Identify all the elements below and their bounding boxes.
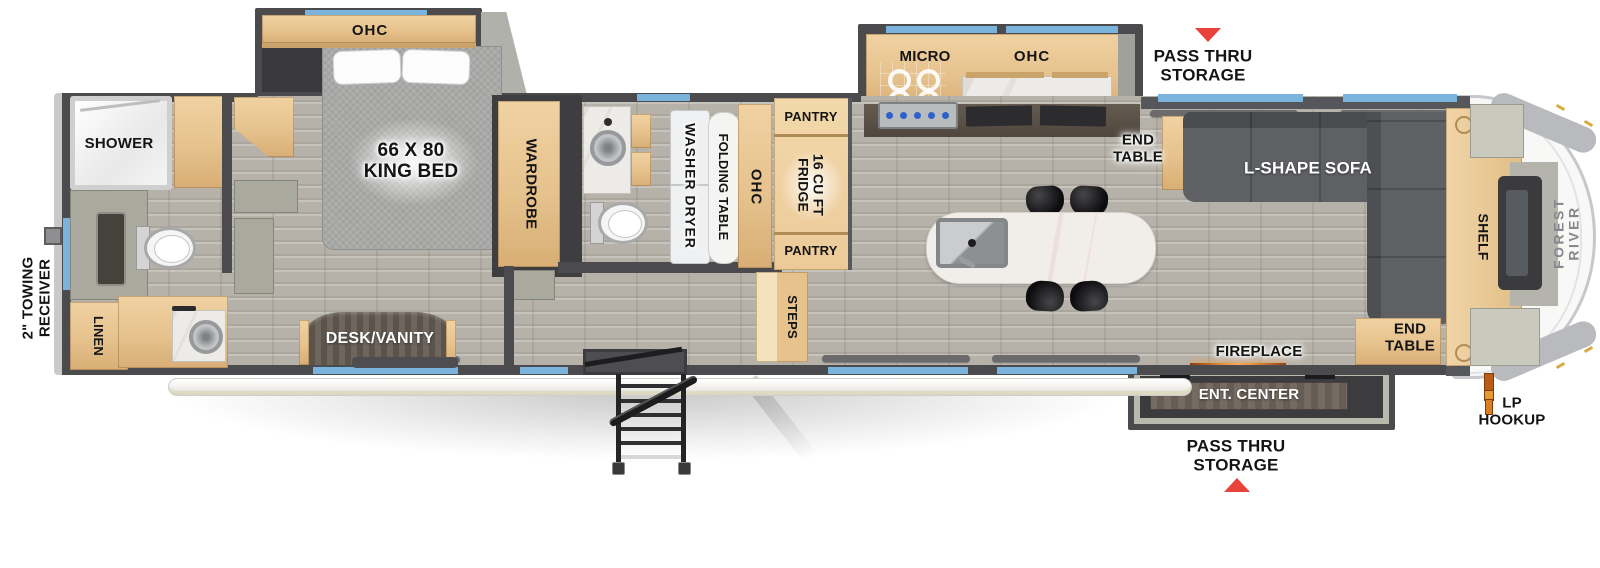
- kitchen-slide-cabinet-rail: [1052, 72, 1108, 78]
- window-top-mid: [637, 94, 690, 101]
- hitch-receiver: [44, 227, 62, 245]
- range-burner: [942, 112, 949, 119]
- towing-receiver-label: 2" TOWING RECEIVER: [21, 257, 54, 340]
- rear-sink-basin: [189, 320, 223, 354]
- pantry-bottom-label: PANTRY: [784, 244, 837, 258]
- l-shape-sofa-label: L-SHAPE SOFA: [1244, 160, 1372, 179]
- shelf-cabinet-bottom: [1470, 308, 1540, 366]
- island-chair: [1025, 280, 1065, 312]
- bedroom-closet-lower: [234, 218, 274, 294]
- floorplan-canvas: SHOWER LINEN 2" TOWING RECEIVER OHC 66 X…: [0, 0, 1600, 568]
- bath2-drawer-top: [631, 114, 651, 148]
- window-top-living-1: [1158, 94, 1303, 102]
- tie-down-hook: [1556, 362, 1565, 369]
- counter-black-left: [966, 105, 1032, 126]
- pillow-right: [401, 49, 470, 85]
- range-burner: [914, 112, 921, 119]
- forest-river-brand-label: FOREST RIVER: [1552, 197, 1583, 269]
- hall-divider-wall: [504, 266, 514, 375]
- pantry-fridge-divider: [774, 134, 850, 137]
- hall-ohc-label: OHC: [747, 169, 764, 205]
- wardrobe-label: WARDROBE: [522, 139, 539, 230]
- range-burner: [900, 112, 907, 119]
- ladder-rung: [621, 441, 681, 445]
- folding-table-label: FOLDING TABLE: [716, 133, 730, 240]
- tv-screen: [1506, 190, 1528, 276]
- rear-sink-faucet: [172, 306, 196, 311]
- fridge-label: 16 CU FT FRIDGE: [795, 154, 826, 216]
- window-rear-left: [63, 218, 70, 290]
- ladder-rung: [621, 427, 681, 431]
- king-bed-label: 66 X 80 KING BED: [364, 141, 459, 183]
- bath2-faucet: [604, 118, 612, 126]
- wall-bottom: [62, 365, 1460, 375]
- tie-down-hook: [1556, 104, 1565, 111]
- kitchen-slide-window-left: [886, 26, 997, 33]
- fridge-edge: [848, 98, 852, 270]
- island-sink-drain: [968, 239, 976, 247]
- pantry-fridge-divider: [774, 232, 850, 235]
- pass-thru-bottom-label: PASS THRU STORAGE: [1187, 437, 1286, 474]
- toilet-rear-seat: [154, 235, 190, 263]
- rear-vanity-mirror: [96, 212, 126, 286]
- window-bottom-hall: [520, 367, 568, 374]
- curtain-rod: [992, 355, 1140, 362]
- end-table-bottom-label: END TABLE: [1385, 322, 1435, 355]
- arrow-down-icon: [1195, 28, 1221, 42]
- micro-label: MICRO: [900, 49, 951, 66]
- island-chair: [1069, 280, 1109, 312]
- fireplace-label: FIREPLACE: [1216, 344, 1303, 361]
- bedroom-platform: [513, 270, 555, 300]
- rear-bath-cabinet: [174, 96, 226, 188]
- steps-label: STEPS: [785, 295, 799, 339]
- burner-icon: [888, 69, 911, 92]
- ladder-rung: [621, 455, 681, 459]
- pantry-top-label: PANTRY: [784, 110, 837, 124]
- ent-center-label: ENT. CENTER: [1199, 387, 1300, 404]
- pass-thru-top-label: PASS THRU STORAGE: [1154, 47, 1253, 84]
- end-table-top-label: END TABLE: [1113, 133, 1163, 166]
- window-top-living-2: [1343, 94, 1457, 102]
- wall-divider-bath-bedroom: [222, 95, 232, 273]
- toilet-mid-seat: [608, 210, 642, 238]
- shower-label: SHOWER: [85, 136, 154, 153]
- desk-bench: [352, 357, 458, 368]
- range-burner: [886, 112, 893, 119]
- ladder-foot: [612, 462, 625, 475]
- window-bottom-living-2: [997, 367, 1137, 374]
- bedroom-ohc-label: OHC: [352, 23, 388, 40]
- window-bottom-living-1: [828, 367, 968, 374]
- bath2-sink-basin: [590, 130, 626, 166]
- range-burner: [928, 112, 935, 119]
- kitchen-slide-cabinet-rail: [966, 72, 1044, 78]
- lp-hookup-label: LP HOOKUP: [1478, 396, 1545, 429]
- bedroom-closet-upper: [234, 180, 298, 213]
- sofa-chaise: [1367, 112, 1457, 324]
- washer-dryer-label: WASHER DRYER: [682, 123, 697, 249]
- steps-unit: [756, 272, 808, 362]
- shelf-label: SHELF: [1475, 214, 1490, 261]
- kitchen-slide-window-right: [1006, 26, 1118, 33]
- bedroom-slide-left-panel: [262, 46, 324, 92]
- desk-side-panel-left: [299, 320, 309, 365]
- burner-icon: [917, 69, 940, 92]
- curtain-rod: [822, 355, 970, 362]
- bath2-drawer-bottom: [631, 152, 651, 186]
- ladder-foot: [678, 462, 691, 475]
- desk-vanity-label: DESK/VANITY: [326, 330, 435, 348]
- linen-label: LINEN: [91, 316, 105, 356]
- pillow-left: [332, 49, 401, 85]
- shelf-cabinet-top: [1470, 104, 1524, 158]
- arrow-up-icon: [1224, 478, 1250, 492]
- counter-black-right: [1040, 105, 1106, 126]
- window-bottom-bedroom: [313, 367, 458, 374]
- kitchen-ohc-label: OHC: [1014, 49, 1050, 66]
